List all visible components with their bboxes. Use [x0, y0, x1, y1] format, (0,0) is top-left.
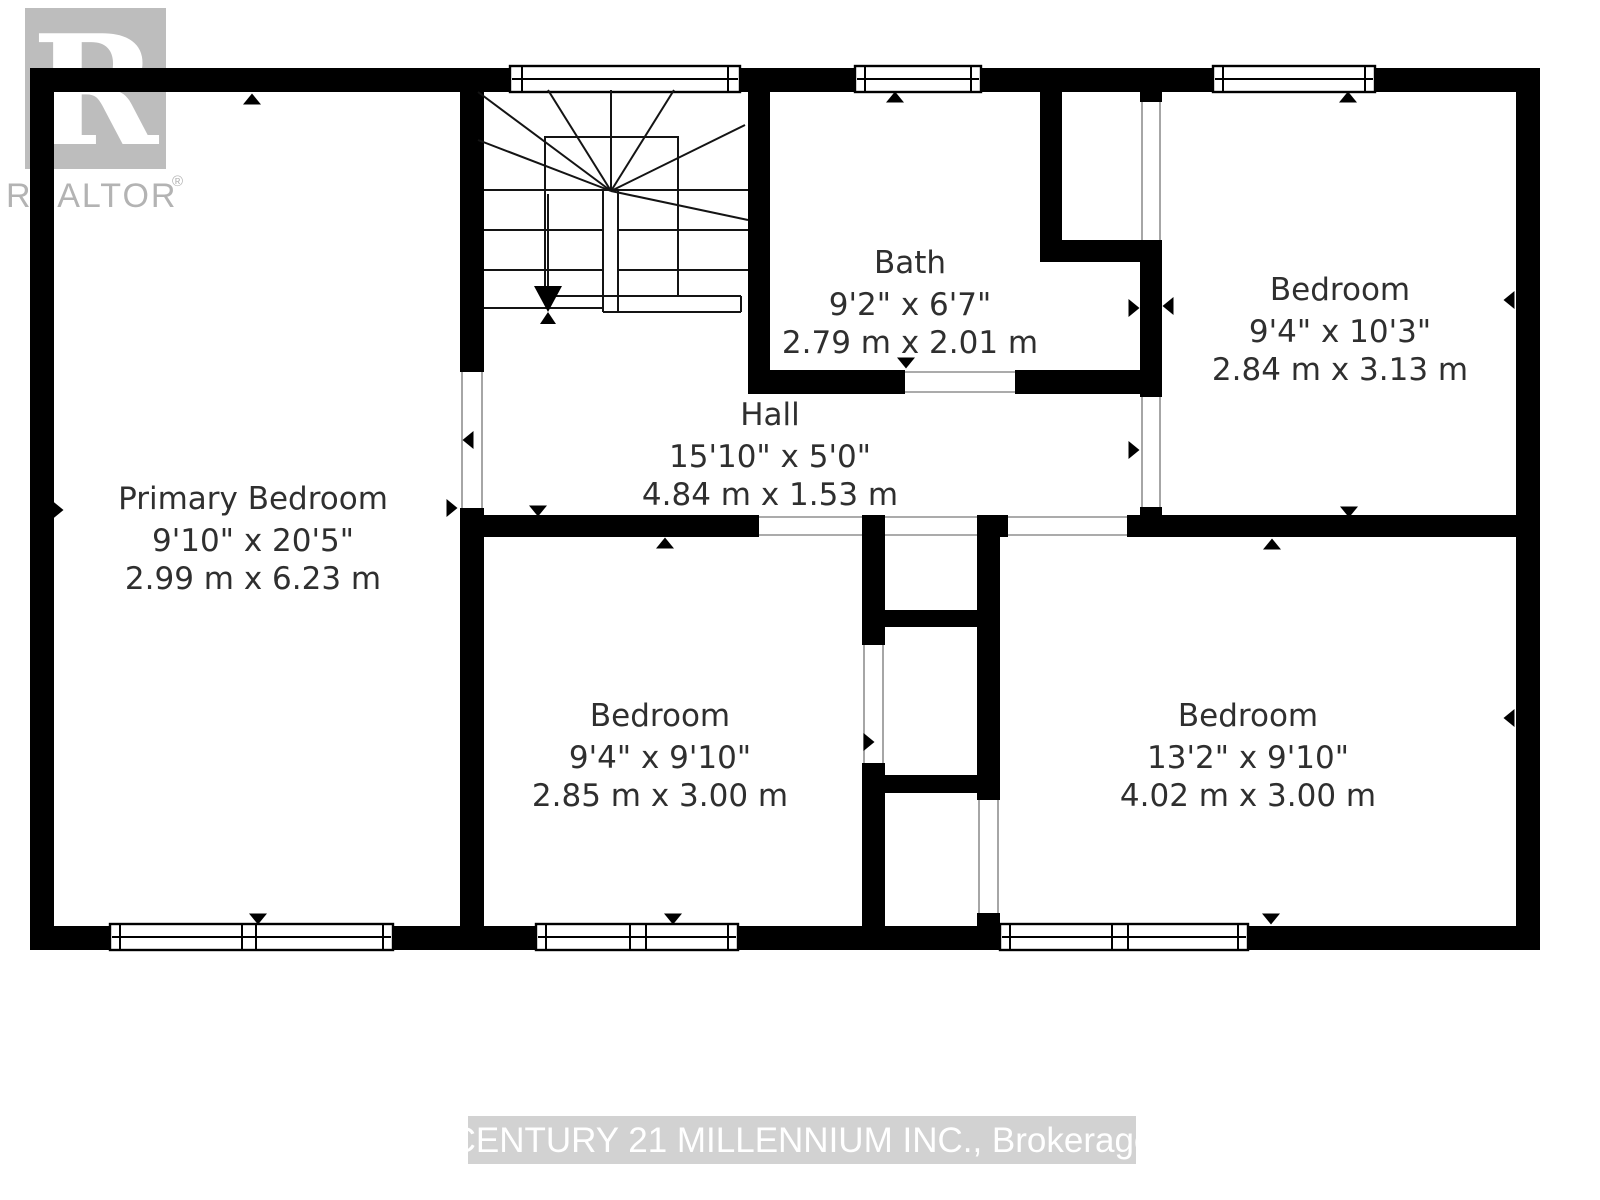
wall-closet-column-right-top — [977, 515, 1000, 800]
marker-right-icon — [1129, 299, 1140, 317]
wall-bedroom-topright-bottom — [1127, 515, 1540, 537]
room-dimensions-imperial: 13'2" x 9'10" — [1147, 740, 1349, 776]
room-name: Bath — [874, 245, 946, 281]
room-label-bedroom-right: Bedroom 13'2" x 9'10" 4.02 m x 3.00 m — [1120, 698, 1376, 814]
marker-right-icon — [1129, 441, 1140, 459]
window-primary-bottom — [110, 924, 393, 950]
marker-down-icon — [529, 506, 547, 517]
window-bedroom-topright — [1213, 66, 1375, 92]
window-bath-top — [855, 66, 981, 92]
room-dimensions-metric: 2.99 m x 6.23 m — [125, 561, 381, 597]
wall-closet-connector-upper — [885, 610, 977, 627]
marker-left-icon — [1504, 709, 1515, 727]
marker-up-icon — [656, 538, 674, 549]
marker-left-icon — [1504, 291, 1515, 309]
room-label-bedroom-top-right: Bedroom 9'4" x 10'3" 2.84 m x 3.13 m — [1212, 272, 1468, 388]
wall-bedroom-topright-stub-top — [1140, 90, 1162, 102]
room-label-primary-bedroom: Primary Bedroom 9'10" x 20'5" 2.99 m x 6… — [118, 481, 388, 597]
wall-hall-bottom — [460, 515, 759, 537]
wall-closet-column-right-stub — [977, 913, 1000, 926]
wall-bath-left — [748, 90, 770, 394]
room-name: Bedroom — [1270, 272, 1410, 308]
room-dimensions-imperial: 9'4" x 9'10" — [569, 740, 751, 776]
room-label-bedroom-middle: Bedroom 9'4" x 9'10" 2.85 m x 3.00 m — [532, 698, 788, 814]
wall-bath-bottom-left — [748, 370, 905, 394]
room-dimensions-metric: 4.02 m x 3.00 m — [1120, 778, 1376, 814]
room-dimensions-imperial: 9'10" x 20'5" — [152, 523, 354, 559]
room-dimensions-metric: 2.79 m x 2.01 m — [782, 325, 1038, 361]
wall-closet-topright-left — [1040, 90, 1062, 262]
room-name: Primary Bedroom — [118, 481, 388, 517]
wall-exterior-left — [30, 68, 54, 950]
wall-bath-bottom-right — [1015, 370, 1162, 394]
floor-plan-drawing: R REALTOR ® — [0, 0, 1600, 1200]
marker-right-icon — [864, 733, 875, 751]
window-bedroom-middle-bottom — [536, 924, 738, 950]
realtor-logo-registered-mark: ® — [172, 173, 183, 190]
wall-bedroom-topright-mid — [1140, 240, 1162, 397]
stair-down-arrow-icon — [534, 194, 562, 324]
room-label-bath: Bath 9'2" x 6'7" 2.79 m x 2.01 m — [782, 245, 1038, 361]
staircase — [478, 90, 748, 324]
wall-closet-connector-lower — [885, 775, 977, 793]
room-dimensions-imperial: 9'4" x 10'3" — [1249, 314, 1431, 350]
wall-closet-column-left-bottom — [862, 763, 885, 926]
marker-up-icon — [243, 94, 261, 105]
marker-left-icon — [1163, 297, 1174, 315]
brokerage-watermark: CENTURY 21 MILLENNIUM INC., Brokerage — [451, 1116, 1154, 1164]
stair-winder-fan — [478, 90, 748, 220]
watermark-text: CENTURY 21 MILLENNIUM INC., Brokerage — [451, 1121, 1154, 1160]
wall-bedroom-middle-left — [460, 508, 484, 926]
room-dimensions-imperial: 9'2" x 6'7" — [829, 287, 992, 323]
marker-down-icon — [1262, 914, 1280, 925]
marker-right-icon — [53, 501, 64, 519]
window-bedroom-right-bottom — [1000, 924, 1248, 950]
room-name: Bedroom — [590, 698, 730, 734]
room-name: Bedroom — [1178, 698, 1318, 734]
room-name: Hall — [740, 397, 800, 433]
room-dimensions-metric: 4.84 m x 1.53 m — [642, 477, 898, 513]
wall-closet-column-left-top — [862, 515, 885, 645]
wall-stairwell-left — [460, 90, 484, 372]
floor-plan-page: R REALTOR ® — [0, 0, 1600, 1200]
room-dimensions-imperial: 15'10" x 5'0" — [669, 439, 871, 475]
room-dimensions-metric: 2.84 m x 3.13 m — [1212, 352, 1468, 388]
room-label-hall: Hall 15'10" x 5'0" 4.84 m x 1.53 m — [642, 397, 898, 513]
marker-left-icon — [463, 431, 474, 449]
marker-up-icon — [1263, 539, 1281, 550]
window-stairs-top — [510, 66, 740, 92]
room-dimensions-metric: 2.85 m x 3.00 m — [532, 778, 788, 814]
marker-right-icon — [447, 499, 458, 517]
wall-exterior-right — [1516, 68, 1540, 950]
